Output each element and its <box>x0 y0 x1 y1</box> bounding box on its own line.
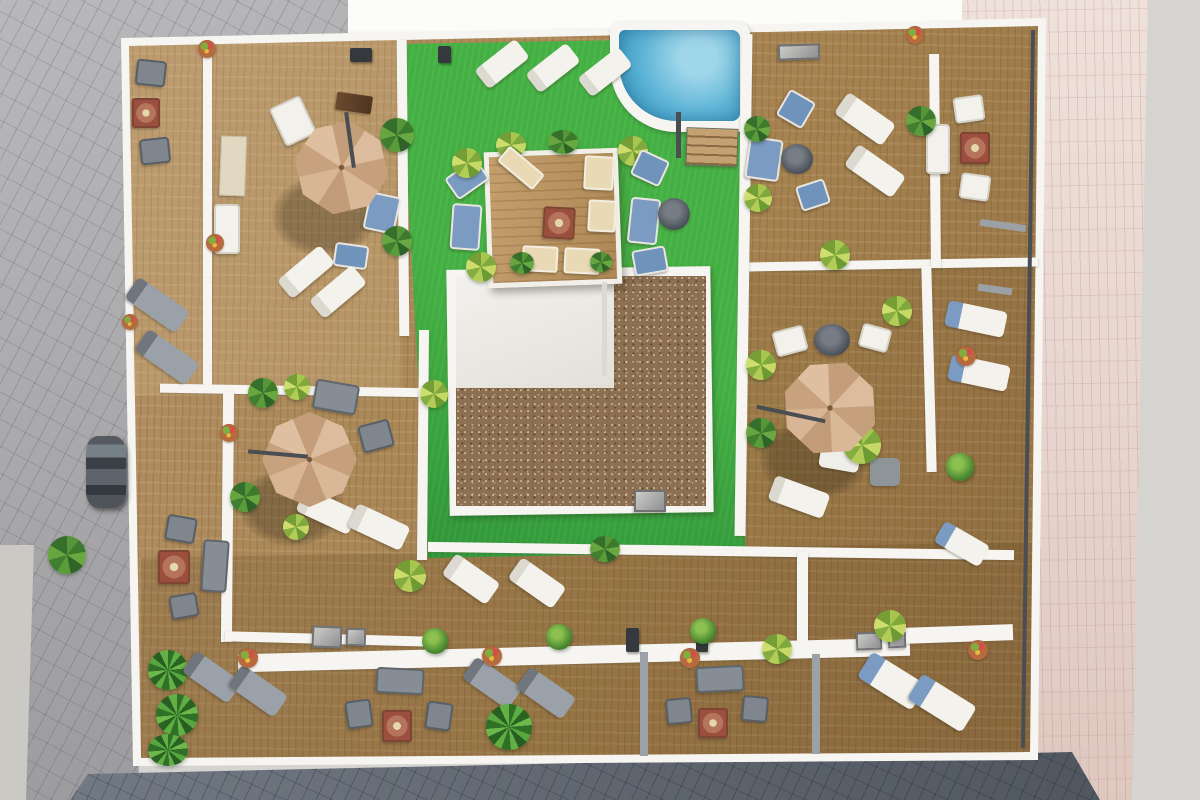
lounge-chair <box>776 89 817 130</box>
shrub <box>510 252 534 274</box>
sun-lounger <box>525 43 581 94</box>
armchair <box>952 94 985 124</box>
dining-table <box>814 324 850 356</box>
building-edge-line <box>1021 30 1035 748</box>
outdoor-sofa <box>449 203 482 251</box>
round-table <box>658 198 690 230</box>
round-bush <box>546 624 572 650</box>
armchair <box>857 323 892 354</box>
flower-pot <box>238 648 258 668</box>
armchair <box>958 172 991 202</box>
armchair <box>741 695 769 723</box>
sun-lounger <box>944 300 1008 338</box>
palm-plant <box>148 650 188 690</box>
street-tree <box>48 536 86 574</box>
parasol-umbrella <box>262 412 357 507</box>
fire-pit-table <box>698 708 728 738</box>
flower-pot <box>220 424 238 442</box>
aerial-render-canvas <box>0 0 1200 800</box>
shrub <box>380 118 414 152</box>
shrub <box>230 482 260 512</box>
outdoor-sofa <box>627 197 662 246</box>
sun-lounger <box>228 664 289 717</box>
armchair <box>344 698 374 729</box>
wall-divider <box>417 330 429 560</box>
shrub <box>283 514 309 540</box>
sun-lounger <box>577 47 633 98</box>
shrub <box>874 610 906 642</box>
sun-lounger <box>933 521 990 568</box>
wood-table <box>335 92 373 115</box>
shrub <box>420 380 448 408</box>
outdoor-sofa <box>695 665 744 693</box>
parked-car <box>86 436 126 508</box>
outdoor-sofa <box>375 667 424 695</box>
flower-pot <box>122 314 138 330</box>
flower-pot <box>956 346 976 366</box>
shrub <box>590 536 620 562</box>
outdoor-counter <box>219 136 247 197</box>
pool-steps <box>685 127 738 167</box>
sun-lounger <box>347 503 411 551</box>
armchair <box>665 697 693 725</box>
sun-lounger <box>834 92 896 147</box>
flower-pot <box>906 26 924 44</box>
wall-divider <box>428 542 1014 560</box>
sun-lounger <box>134 329 200 386</box>
ottoman <box>870 458 900 486</box>
shrub <box>248 378 278 408</box>
shrub <box>382 226 412 256</box>
armchair <box>771 324 809 357</box>
armchair <box>357 418 395 453</box>
sun-lounger <box>474 39 530 90</box>
flower-pot <box>482 646 502 666</box>
fire-pit-table <box>960 132 990 164</box>
roof-skylight <box>312 625 343 648</box>
flower-pot <box>206 234 224 252</box>
shrub <box>744 116 770 142</box>
deck-cushion <box>587 199 617 232</box>
counter-unit <box>778 43 821 60</box>
deck-cushion <box>583 155 615 191</box>
shrub <box>882 296 912 326</box>
sun-lounger <box>441 553 500 605</box>
round-bush <box>946 453 974 481</box>
shrub <box>548 130 578 154</box>
wall-divider <box>734 34 752 536</box>
roof-skylight <box>634 490 666 512</box>
armchair <box>424 700 454 731</box>
shrub <box>284 374 310 400</box>
wall-divider <box>203 44 212 392</box>
terrace-divider <box>812 654 820 754</box>
sun-lounger <box>507 557 566 609</box>
palm-plant <box>148 734 188 766</box>
shrub <box>744 184 772 212</box>
shrub <box>394 560 426 592</box>
sun-lounger <box>844 144 906 199</box>
fire-pit-table <box>132 98 160 128</box>
palm-plant <box>486 704 532 750</box>
flower-pot <box>198 40 216 58</box>
round-table <box>781 144 813 174</box>
furniture-layer <box>0 0 1200 800</box>
flower-pot <box>680 648 700 668</box>
outdoor-sofa <box>312 378 361 415</box>
wall-divider <box>744 257 1038 271</box>
palm-plant <box>156 694 198 736</box>
shrub <box>906 106 936 136</box>
outdoor-sofa <box>200 539 230 593</box>
shrub <box>452 148 482 178</box>
wall-divider <box>921 266 936 472</box>
armchair <box>164 514 198 545</box>
roof-vent <box>350 48 372 62</box>
shrub <box>746 350 776 380</box>
flower-pot <box>968 640 988 660</box>
lounge-chair <box>631 245 669 277</box>
armchair <box>135 59 168 88</box>
fire-pit-table <box>158 550 190 584</box>
terrace-divider <box>640 652 648 756</box>
wall-divider <box>397 40 410 336</box>
armchair <box>139 137 172 166</box>
shrub <box>746 418 776 448</box>
balcony-railing <box>978 284 1013 296</box>
walkway-parapet <box>903 624 1013 644</box>
roof-skylight <box>346 628 367 647</box>
bollard <box>626 628 639 652</box>
lounge-chair <box>795 178 832 212</box>
round-bush <box>422 628 448 654</box>
pool-ladder <box>676 112 681 158</box>
wall-divider <box>797 552 808 654</box>
roof-vent <box>438 46 451 63</box>
outdoor-sofa <box>744 136 784 182</box>
roof-seam <box>602 282 607 376</box>
round-bush <box>690 618 716 644</box>
shrub <box>820 240 850 270</box>
fire-pit-table <box>382 710 412 742</box>
shrub <box>590 252 612 272</box>
balcony-railing <box>980 219 1027 232</box>
sun-lounger <box>907 673 977 732</box>
shrub <box>762 634 792 664</box>
fire-pit-table <box>542 206 576 240</box>
armchair <box>168 592 200 620</box>
shrub <box>466 252 496 282</box>
